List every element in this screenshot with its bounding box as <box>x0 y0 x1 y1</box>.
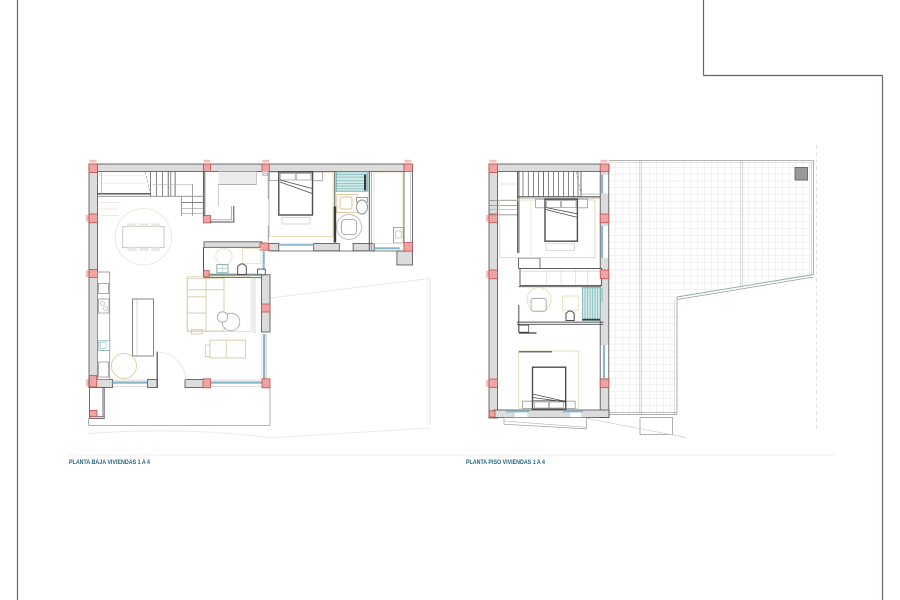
svg-text:PLANTA PISO VIVIENDAS 1 A 4: PLANTA PISO VIVIENDAS 1 A 4 <box>466 459 545 466</box>
svg-text:PLANTA BAJA VIVIENDAS 1 A 4: PLANTA BAJA VIVIENDAS 1 A 4 <box>69 459 150 466</box>
